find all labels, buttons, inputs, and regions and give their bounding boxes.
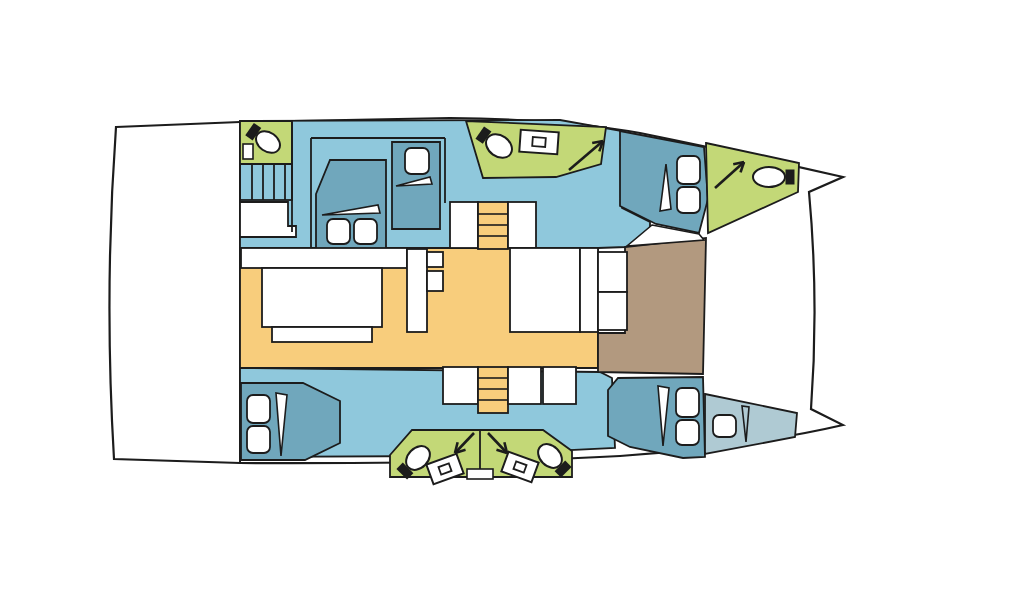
galley-unit-bottom	[598, 292, 627, 330]
counter-top-left	[240, 202, 296, 237]
floor-plan-canvas	[0, 0, 1024, 600]
saloon-sofa	[241, 248, 407, 268]
master-bed-pillow-left	[327, 219, 350, 244]
cabin-aft-bottom-pillow-1	[247, 395, 270, 423]
head-top-left-sink	[243, 144, 253, 159]
galley-block-mid	[580, 248, 598, 332]
saloon-counter-compartment-2	[427, 271, 443, 291]
stairs-top-landing-right	[508, 202, 536, 248]
saloon-counter-right	[407, 249, 427, 332]
master-bed-pillow-right	[354, 219, 377, 244]
saloon-table	[262, 268, 382, 327]
forepeak-pillow	[713, 415, 736, 437]
cabin-bow-top-pillow-2	[677, 187, 700, 213]
galley-block-left	[510, 248, 580, 332]
stairs-bottom-landing-left	[443, 367, 478, 404]
heads-bottom-door-notch	[467, 469, 493, 479]
cabin-bow-bottom-pillow-1	[676, 388, 699, 417]
cabin-bow-top-pillow-1	[677, 156, 700, 184]
head-bow-top-toilet	[753, 167, 795, 187]
stairs-bottom-landing-right	[543, 367, 576, 404]
saloon-bench	[272, 327, 372, 342]
saloon-counter-compartment-1	[427, 252, 443, 267]
stairs-top-landing-left	[450, 202, 478, 248]
boat-floor-plan	[0, 0, 1024, 600]
stairs-bottom-flight	[478, 367, 508, 413]
head-top-center-sink	[519, 130, 558, 155]
cabin-aft-bottom-pillow-2	[247, 426, 270, 453]
single-berth-top-pillow	[405, 148, 429, 174]
cabin-bow-bottom-pillow-2	[676, 420, 699, 445]
galley-unit-top	[598, 252, 627, 292]
stairs-bottom-landing-mid	[508, 367, 541, 404]
